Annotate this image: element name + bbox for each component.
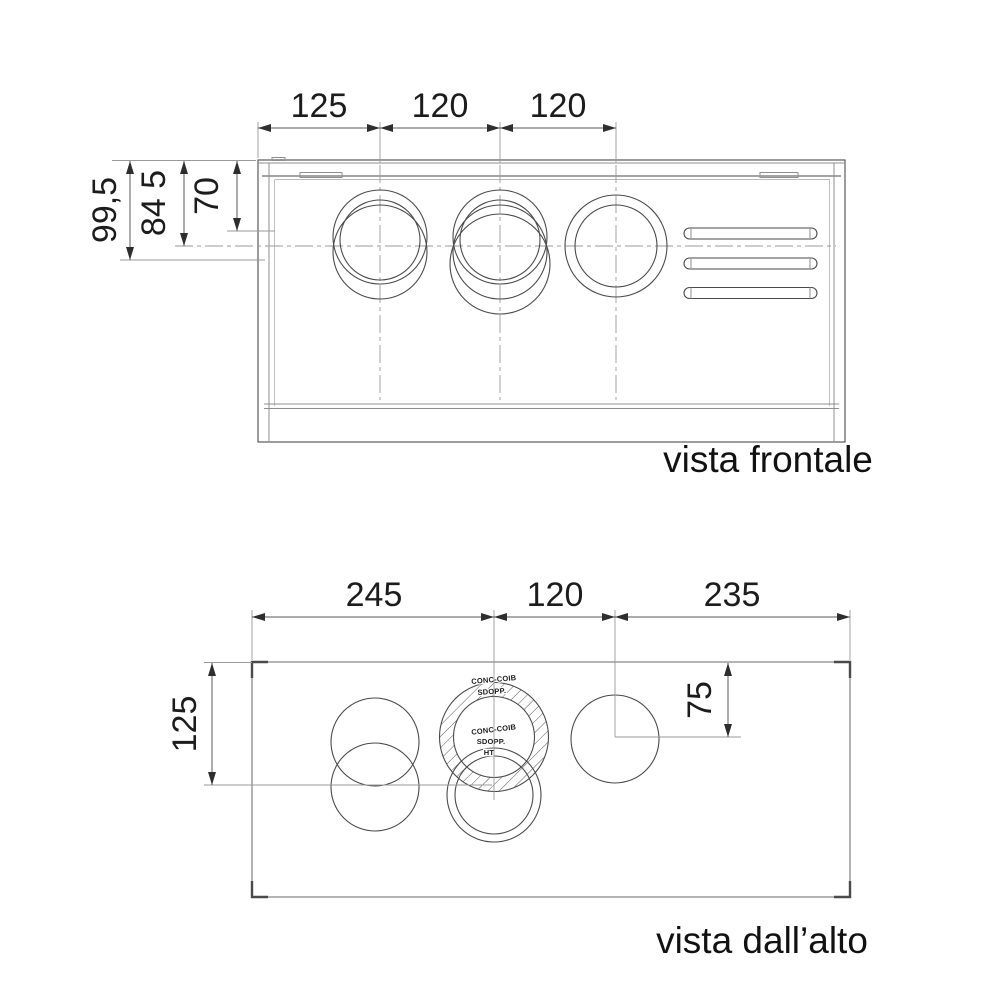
front-view-cabinet-outline [258,158,845,443]
dim-label-75: 75 [681,681,719,719]
top-view-outline [252,662,850,897]
front-cabinet-outer-box [258,160,845,442]
drawing-svg: 125 120 120 99,5 84 5 70 vista frontale [0,0,1000,1000]
top-view-flue-group-1 [331,698,419,831]
top-view-caption: vista dall’alto [656,920,868,961]
front-lid-tab-right [760,173,798,178]
dim-label-120-b: 120 [530,87,587,125]
dim-label-120-a: 120 [412,87,469,125]
front-view-left-dimensions: 99,5 84 5 70 [86,161,275,261]
front-view: 125 120 120 99,5 84 5 70 vista frontale [86,87,873,480]
front-view-caption: vista frontale [663,439,873,480]
front-view-vent-slots [684,228,817,299]
dim-label-120-top-view: 120 [527,576,584,614]
vent-slot-1 [684,228,817,239]
front-lid-tab-left [300,173,342,178]
dim-label-70: 70 [188,177,226,215]
hatched-hole-lower [331,743,419,831]
flue-label-sdopp-inner: SDOPP. [477,737,506,746]
dim-label-245: 245 [346,576,403,614]
dim-label-84-5: 84 5 [135,170,173,236]
top-view-box [252,662,850,897]
top-view: CONC-COIB SDOPP. CONC-COIB SDOPP. HT 245… [166,576,868,961]
dim-label-99-5: 99,5 [86,177,124,243]
top-view-right-dimension: 75 [615,663,741,737]
flue-label-ht: HT [484,748,495,757]
dim-label-125-top-view: 125 [166,696,204,753]
top-view-top-dimensions: 245 120 235 [252,576,850,800]
dim-label-235: 235 [704,576,761,614]
front-lid-notch [272,158,285,161]
technical-drawing-sheet: 125 120 120 99,5 84 5 70 vista frontale [0,0,1000,1000]
hatched-hole-upper [331,698,419,786]
dim-label-125: 125 [291,87,348,125]
vent-slot-2 [684,258,817,269]
vent-slot-3 [684,288,817,299]
front-view-top-dimensions: 125 120 120 [258,87,616,163]
